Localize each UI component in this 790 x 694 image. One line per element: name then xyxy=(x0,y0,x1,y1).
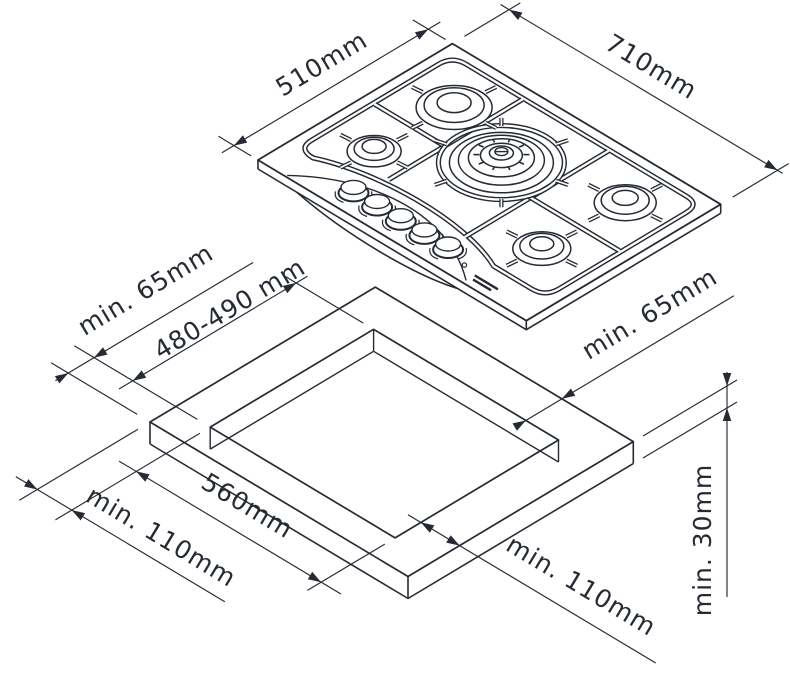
margin-right-label: min. 110mm xyxy=(501,530,661,642)
hob-width-label: 710mm xyxy=(600,28,702,105)
installation-diagram-page: 510mm 710mm min. 65mm 480-490 mm min. 65… xyxy=(0,0,790,694)
installation-diagram: 510mm 710mm min. 65mm 480-490 mm min. 65… xyxy=(0,0,790,694)
hob-depth-label: 510mm xyxy=(271,25,373,102)
worktop-thickness-label: min. 30mm xyxy=(688,464,717,617)
hob-top-view xyxy=(258,44,721,330)
worktop-cutout-view xyxy=(150,287,633,598)
